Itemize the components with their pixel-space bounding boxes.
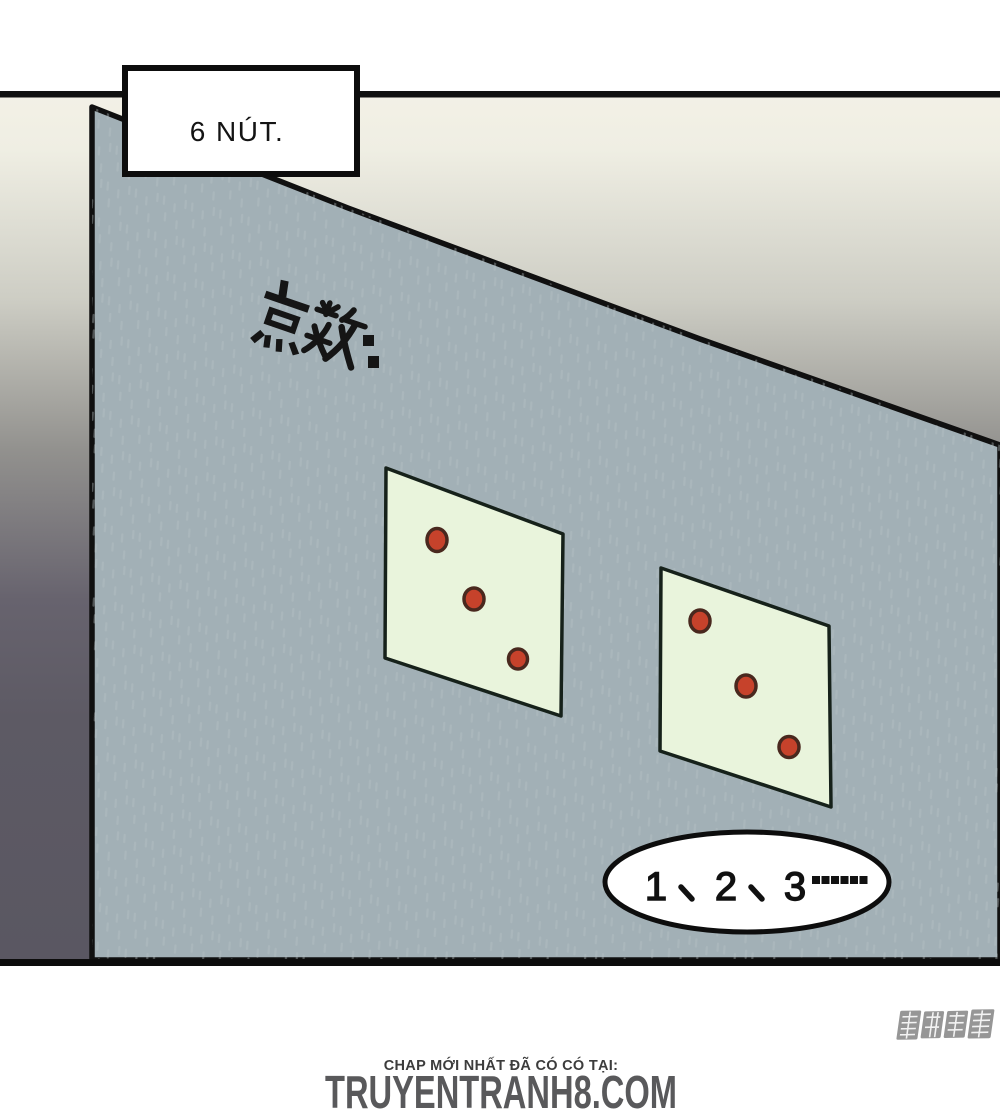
svg-text:6 NÚT.: 6 NÚT. [190,116,285,147]
svg-text:2: 2 [715,865,737,909]
svg-text:TRUYENTRANH8.COM: TRUYENTRANH8.COM [325,1066,677,1114]
svg-text:3: 3 [784,865,806,909]
svg-text:1: 1 [645,865,667,909]
